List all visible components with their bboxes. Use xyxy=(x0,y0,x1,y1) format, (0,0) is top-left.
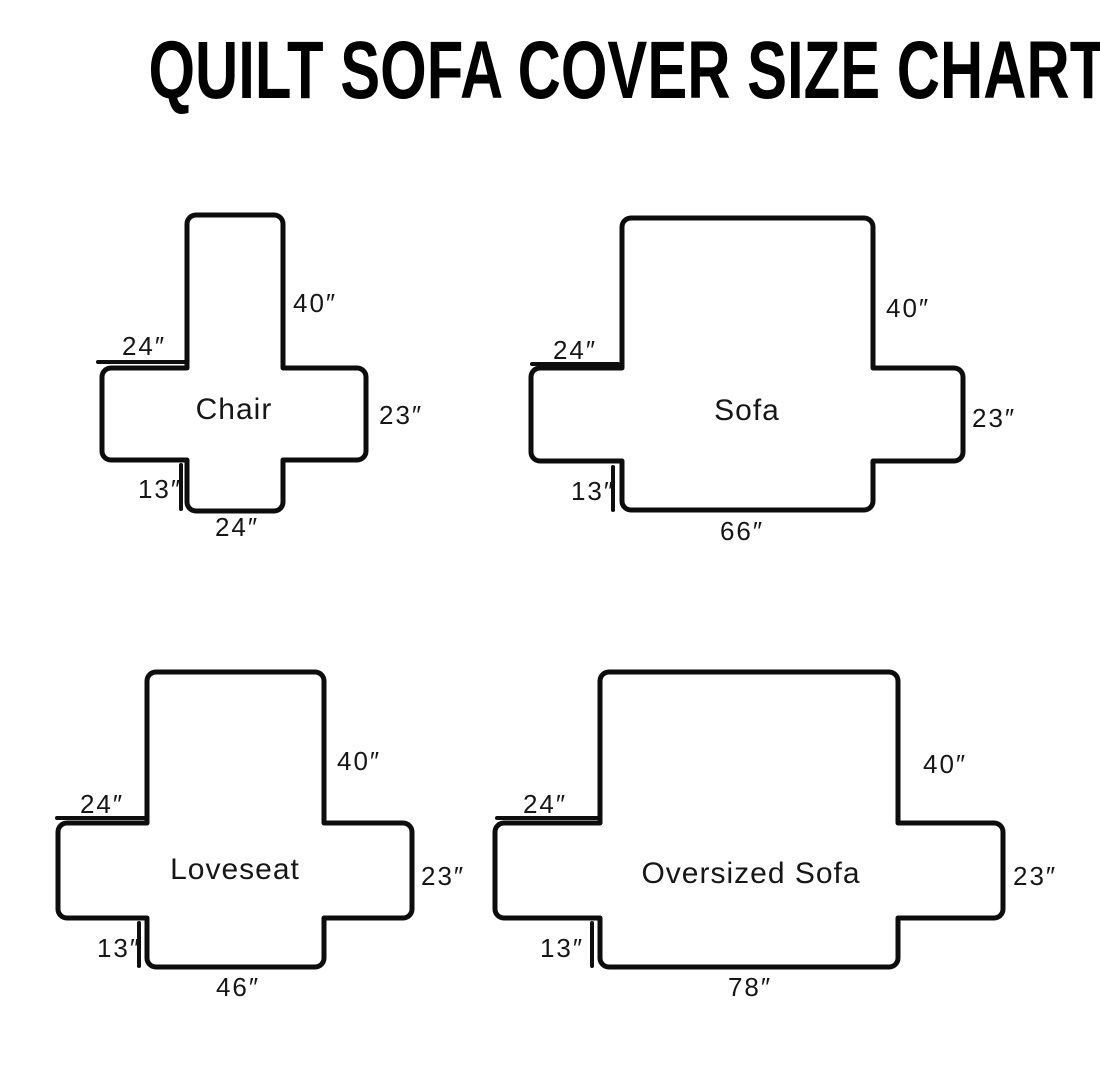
back-height-label: 40″ xyxy=(923,749,967,779)
arm-width-label: 24″ xyxy=(80,789,124,819)
arm-width-label: 24″ xyxy=(122,331,166,361)
side-depth-label: 23″ xyxy=(421,861,465,891)
front-drop-label: 13″ xyxy=(97,933,141,963)
bottom-width-label: 24″ xyxy=(215,512,259,542)
back-height-label: 40″ xyxy=(337,746,381,776)
side-depth-label: 23″ xyxy=(1013,861,1057,891)
bottom-width-label: 46″ xyxy=(216,972,260,1002)
cover-name-label: Oversized Sofa xyxy=(641,857,860,890)
bottom-width-label: 78″ xyxy=(728,972,772,1002)
cover-name-label: Loveseat xyxy=(170,853,300,886)
diagram-chair: 40″24″23″13″24″Chair xyxy=(98,215,423,542)
diagram-loveseat: 40″24″23″13″46″Loveseat xyxy=(57,672,465,1002)
diagram-sofa: 40″24″23″13″66″Sofa xyxy=(531,218,1016,546)
front-drop-label: 13″ xyxy=(138,474,182,504)
arm-width-label: 24″ xyxy=(553,335,597,365)
bottom-width-label: 66″ xyxy=(720,516,764,546)
side-depth-label: 23″ xyxy=(379,400,423,430)
arm-width-label: 24″ xyxy=(523,789,567,819)
diagrams-canvas: 40″24″23″13″24″Chair40″24″23″13″66″Sofa4… xyxy=(0,0,1100,1092)
cover-name-label: Sofa xyxy=(714,394,780,427)
front-drop-label: 13″ xyxy=(540,933,584,963)
cover-name-label: Chair xyxy=(196,393,273,426)
back-height-label: 40″ xyxy=(293,288,337,318)
front-drop-label: 13″ xyxy=(571,476,615,506)
side-depth-label: 23″ xyxy=(972,403,1016,433)
back-height-label: 40″ xyxy=(886,293,930,323)
diagram-oversized-sofa: 40″24″23″13″78″Oversized Sofa xyxy=(495,672,1057,1002)
